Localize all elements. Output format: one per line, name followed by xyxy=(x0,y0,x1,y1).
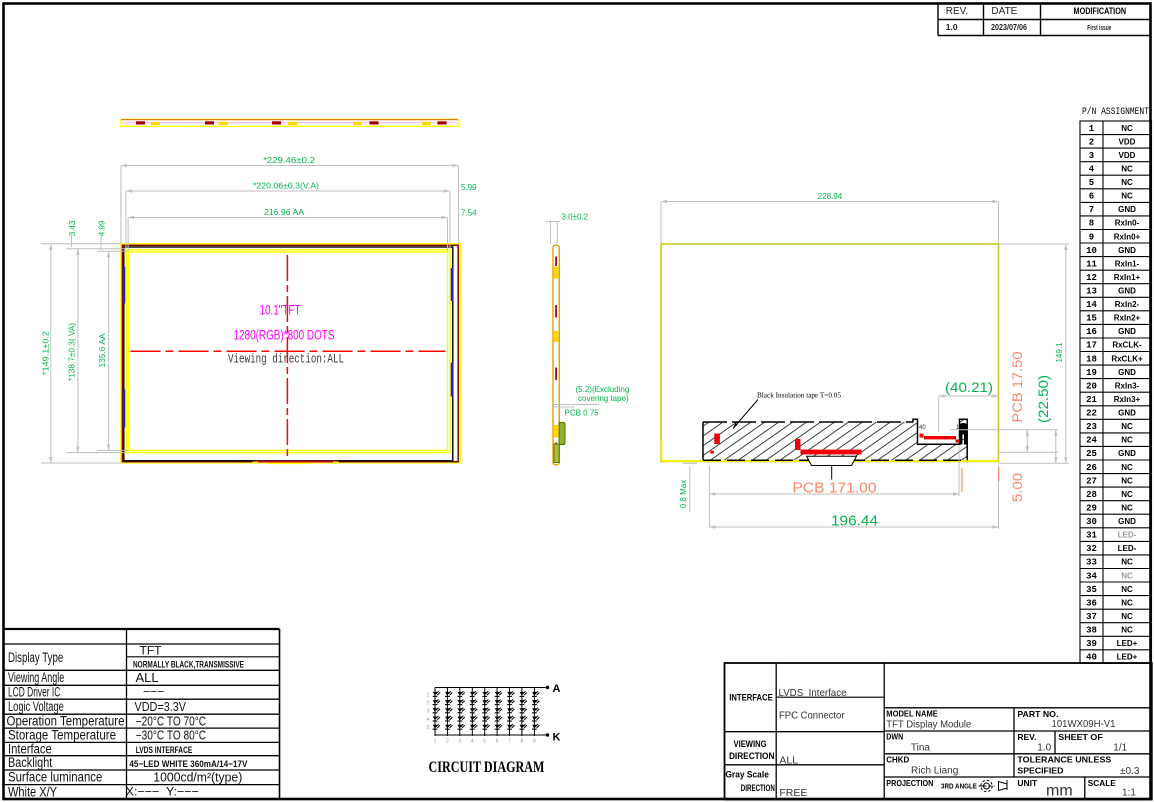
svg-text:GND: GND xyxy=(1118,327,1136,336)
svg-text:GND: GND xyxy=(1118,517,1136,526)
svg-text:Tina: Tina xyxy=(911,743,931,754)
svg-text:15: 15 xyxy=(1086,314,1097,324)
svg-text:REV.: REV. xyxy=(946,6,968,17)
svg-text:NC: NC xyxy=(1121,476,1133,485)
svg-text:TFT: TFT xyxy=(140,644,163,658)
svg-text:38: 38 xyxy=(1086,626,1097,636)
svg-text:Viewing direction:ALL: Viewing direction:ALL xyxy=(228,353,344,367)
svg-text:4: 4 xyxy=(1089,165,1095,175)
svg-text:RxIn0-: RxIn0- xyxy=(1115,219,1140,228)
svg-text:23: 23 xyxy=(1086,422,1097,432)
svg-text:NC: NC xyxy=(1121,463,1133,472)
svg-text:RxIn3-: RxIn3- xyxy=(1115,381,1140,390)
svg-text:0.8 Max: 0.8 Max xyxy=(679,480,688,508)
svg-text:33: 33 xyxy=(1086,558,1097,568)
svg-text:NC: NC xyxy=(1121,558,1133,567)
svg-text:*220.06±0.3(V.A): *220.06±0.3(V.A) xyxy=(253,182,319,191)
svg-text:2: 2 xyxy=(446,739,449,745)
svg-text:35: 35 xyxy=(1086,585,1097,595)
svg-text:TFT Display Module: TFT Display Module xyxy=(886,720,971,731)
svg-text:RxIn0+: RxIn0+ xyxy=(1114,232,1141,241)
svg-text:RxCLK-: RxCLK- xyxy=(1112,341,1142,350)
svg-text:TOLERANCE UNLESS: TOLERANCE UNLESS xyxy=(1017,755,1111,765)
svg-text:NORMALLY BLACK,TRANSMISSIVE: NORMALLY BLACK,TRANSMISSIVE xyxy=(133,659,244,669)
svg-text:LCD Driver IC: LCD Driver IC xyxy=(8,685,60,700)
svg-text:12: 12 xyxy=(1086,273,1097,283)
svg-text:PCB 17.50: PCB 17.50 xyxy=(1009,351,1025,422)
svg-text:25: 25 xyxy=(1086,449,1097,459)
svg-text:3RD ANGLE: 3RD ANGLE xyxy=(941,784,977,791)
svg-text:A: A xyxy=(553,683,561,695)
svg-text:LVDS Interface: LVDS Interface xyxy=(779,687,847,699)
svg-text:3: 3 xyxy=(427,709,430,715)
svg-text:PCB 0.75: PCB 0.75 xyxy=(565,409,600,418)
svg-text:MODEL NAME: MODEL NAME xyxy=(886,709,938,719)
svg-text:27: 27 xyxy=(1086,476,1097,486)
svg-text:LVDS INTERFACE: LVDS INTERFACE xyxy=(136,745,193,756)
svg-text:45−LED WHITE 360mA/14−17V: 45−LED WHITE 360mA/14−17V xyxy=(129,759,248,770)
svg-text:3.43: 3.43 xyxy=(68,220,77,236)
svg-text:White X/Y: White X/Y xyxy=(8,785,57,800)
svg-text:PROJECTION: PROJECTION xyxy=(886,778,933,788)
svg-text:ALL: ALL xyxy=(779,755,798,767)
svg-text:21: 21 xyxy=(1086,395,1097,405)
svg-text:mm: mm xyxy=(1046,783,1073,800)
svg-text:Logic Voltage: Logic Voltage xyxy=(8,699,64,714)
svg-text:1: 1 xyxy=(434,739,437,745)
svg-text:RxIn2-: RxIn2- xyxy=(1115,300,1140,309)
svg-text:Surface luminance: Surface luminance xyxy=(8,770,102,785)
svg-text:31: 31 xyxy=(1086,531,1097,541)
svg-text:SCALE: SCALE xyxy=(1088,778,1116,788)
svg-text:7: 7 xyxy=(1089,205,1094,215)
svg-text:−20°C TO 70°C: −20°C TO 70°C xyxy=(136,715,206,729)
svg-text:P/N ASSIGNMENT: P/N ASSIGNMENT xyxy=(1082,106,1149,118)
svg-text:SPECIFIED: SPECIFIED xyxy=(1017,766,1063,776)
svg-text:7: 7 xyxy=(508,739,511,745)
svg-text:14: 14 xyxy=(1086,300,1097,310)
svg-text:*149.1±0.2: *149.1±0.2 xyxy=(42,330,51,375)
svg-text:Rich Liang: Rich Liang xyxy=(911,766,958,777)
svg-text:LED+: LED+ xyxy=(1117,653,1138,662)
svg-text:PART NO.: PART NO. xyxy=(1017,709,1058,719)
svg-text:LED-: LED- xyxy=(1118,544,1137,553)
svg-text:5.99: 5.99 xyxy=(461,183,477,192)
svg-text:GND: GND xyxy=(1118,368,1136,377)
svg-text:13: 13 xyxy=(1086,287,1097,297)
svg-text:24: 24 xyxy=(1086,436,1097,446)
svg-text:VDD: VDD xyxy=(1119,137,1136,146)
svg-text:X:−−− Y:−−−: X:−−− Y:−−− xyxy=(126,785,199,799)
svg-text:10.1"TFT: 10.1"TFT xyxy=(260,303,301,318)
svg-text:UNIT: UNIT xyxy=(1017,778,1038,788)
svg-text:RxIn2+: RxIn2+ xyxy=(1114,314,1141,323)
svg-text:149.1: 149.1 xyxy=(1055,342,1064,363)
svg-text:RxIn1+: RxIn1+ xyxy=(1114,273,1141,282)
svg-text:covering tape): covering tape) xyxy=(578,394,629,403)
svg-text:NC: NC xyxy=(1121,626,1133,635)
svg-text:DWN: DWN xyxy=(886,732,903,742)
svg-text:1280(RGB)*800 DOTS: 1280(RGB)*800 DOTS xyxy=(234,328,335,343)
svg-text:RxIn1-: RxIn1- xyxy=(1115,259,1140,268)
svg-text:8: 8 xyxy=(1089,219,1094,229)
svg-text:9: 9 xyxy=(533,739,536,745)
svg-text:37: 37 xyxy=(1086,612,1097,622)
svg-text:VIEWING: VIEWING xyxy=(734,739,767,749)
svg-text:LED+: LED+ xyxy=(1117,639,1138,648)
svg-text:3: 3 xyxy=(458,739,461,745)
svg-text:17: 17 xyxy=(1086,341,1097,351)
svg-text:10: 10 xyxy=(1086,246,1097,256)
svg-text:DIRECTION: DIRECTION xyxy=(741,783,775,793)
svg-text:1: 1 xyxy=(427,692,430,698)
svg-text:*229.46±0.2: *229.46±0.2 xyxy=(263,156,316,165)
svg-text:SHEET OF: SHEET OF xyxy=(1058,732,1103,742)
svg-text:8: 8 xyxy=(521,739,524,745)
svg-text:16: 16 xyxy=(1086,327,1097,337)
svg-text:19: 19 xyxy=(1086,368,1097,378)
svg-text:*138.7±0.3( VA): *138.7±0.3( VA) xyxy=(68,323,77,381)
svg-text:101WX09H-V1: 101WX09H-V1 xyxy=(1052,719,1116,730)
svg-text:−−−: −−− xyxy=(143,685,164,699)
svg-text:(22.50): (22.50) xyxy=(1035,375,1051,423)
svg-text:216.96 AA: 216.96 AA xyxy=(264,208,305,217)
svg-text:29: 29 xyxy=(1086,504,1097,514)
svg-text:NC: NC xyxy=(1121,504,1133,513)
svg-text:5: 5 xyxy=(483,739,486,745)
svg-text:GND: GND xyxy=(1118,246,1136,255)
svg-text:NC: NC xyxy=(1121,490,1133,499)
svg-text:1/1: 1/1 xyxy=(1113,743,1127,754)
svg-text:NC: NC xyxy=(1121,178,1133,187)
svg-text:CIRCUIT DIAGRAM: CIRCUIT DIAGRAM xyxy=(429,759,545,776)
svg-text:VDD=3.3V: VDD=3.3V xyxy=(135,700,187,714)
svg-text:4: 4 xyxy=(427,717,430,723)
svg-text:RxIn3+: RxIn3+ xyxy=(1114,395,1141,404)
svg-text:1: 1 xyxy=(1089,124,1095,134)
svg-text:5: 5 xyxy=(1089,178,1094,188)
svg-text:DATE: DATE xyxy=(991,6,1017,17)
svg-text:Storage Temperature: Storage Temperature xyxy=(8,728,116,743)
svg-text:NC: NC xyxy=(1121,436,1133,445)
svg-text:DIRECTION: DIRECTION xyxy=(729,751,775,761)
svg-text:1.0: 1.0 xyxy=(1037,743,1051,754)
svg-text:First issue: First issue xyxy=(1087,23,1111,32)
svg-text:ALL: ALL xyxy=(136,670,159,685)
svg-text:2: 2 xyxy=(427,701,430,707)
svg-text:22: 22 xyxy=(1086,409,1097,419)
svg-text:6: 6 xyxy=(496,739,499,745)
svg-text:Black Insulation tape T=0.05: Black Insulation tape T=0.05 xyxy=(757,391,841,400)
svg-text:26: 26 xyxy=(1086,463,1097,473)
svg-text:18: 18 xyxy=(1086,354,1097,364)
svg-text:4: 4 xyxy=(471,739,474,745)
svg-text:3: 3 xyxy=(1089,151,1094,161)
svg-text:MODIFICATION: MODIFICATION xyxy=(1074,6,1127,17)
svg-text:GND: GND xyxy=(1118,409,1136,418)
svg-text:VDD: VDD xyxy=(1119,151,1136,160)
svg-text:RxCLK+: RxCLK+ xyxy=(1111,354,1143,363)
svg-text:4.99: 4.99 xyxy=(98,220,107,236)
svg-text:±0.3: ±0.3 xyxy=(1120,766,1140,777)
svg-text:(5.2)(Excluding: (5.2)(Excluding xyxy=(576,385,630,394)
svg-text:1:1: 1:1 xyxy=(1122,788,1136,799)
svg-text:39: 39 xyxy=(1086,639,1097,649)
svg-text:5: 5 xyxy=(427,725,430,731)
svg-text:−30°C TO 80°C: −30°C TO 80°C xyxy=(136,729,206,743)
svg-text:34: 34 xyxy=(1086,571,1097,581)
svg-text:NC: NC xyxy=(1121,585,1133,594)
svg-text:NC: NC xyxy=(1121,165,1133,174)
svg-text:Backlight: Backlight xyxy=(8,755,52,770)
svg-text:NC: NC xyxy=(1121,192,1133,201)
svg-text:32: 32 xyxy=(1086,544,1097,554)
svg-text:30: 30 xyxy=(1086,517,1097,527)
svg-text:2: 2 xyxy=(1089,137,1094,147)
svg-text:228.94: 228.94 xyxy=(818,192,843,201)
svg-text:NC: NC xyxy=(1121,124,1133,133)
svg-text:40: 40 xyxy=(1086,653,1097,663)
svg-text:(40.21): (40.21) xyxy=(945,379,993,395)
svg-text:Viewing Angle: Viewing Angle xyxy=(8,670,64,685)
svg-text:Operation Temperature: Operation Temperature xyxy=(7,714,125,729)
svg-text:NC: NC xyxy=(1121,422,1133,431)
svg-text:LED-: LED- xyxy=(1118,531,1137,540)
svg-text:FPC Connector: FPC Connector xyxy=(779,709,845,721)
svg-text:6: 6 xyxy=(1089,192,1094,202)
svg-text:11: 11 xyxy=(1086,259,1097,269)
svg-text:NC: NC xyxy=(1121,598,1133,607)
svg-text:9: 9 xyxy=(1089,232,1094,242)
svg-text:FREE: FREE xyxy=(779,787,807,799)
svg-text:135.6 AA: 135.6 AA xyxy=(98,333,107,368)
svg-text:CHKD: CHKD xyxy=(886,755,909,765)
svg-text:K: K xyxy=(553,732,561,744)
svg-text:1000cd/m²(type): 1000cd/m²(type) xyxy=(153,770,242,785)
svg-text:NC: NC xyxy=(1121,571,1133,580)
svg-text:GND: GND xyxy=(1118,287,1136,296)
svg-text:40: 40 xyxy=(919,425,926,431)
svg-text:Display Type: Display Type xyxy=(8,650,63,665)
svg-text:7.54: 7.54 xyxy=(461,209,477,218)
svg-text:20: 20 xyxy=(1086,381,1097,391)
svg-text:5.00: 5.00 xyxy=(1009,473,1025,502)
svg-text:REV.: REV. xyxy=(1017,732,1036,742)
svg-text:28: 28 xyxy=(1086,490,1097,500)
svg-text:2023/07/06: 2023/07/06 xyxy=(991,22,1027,32)
svg-text:INTERFACE: INTERFACE xyxy=(729,693,773,703)
svg-text:36: 36 xyxy=(1086,598,1097,608)
svg-text:NC: NC xyxy=(1121,612,1133,621)
svg-text:GND: GND xyxy=(1118,205,1136,214)
svg-text:GND: GND xyxy=(1118,449,1136,458)
svg-text:1.0: 1.0 xyxy=(946,22,958,32)
svg-text:3.0±0.2: 3.0±0.2 xyxy=(562,213,589,222)
svg-text:Gray Scale: Gray Scale xyxy=(725,769,769,779)
